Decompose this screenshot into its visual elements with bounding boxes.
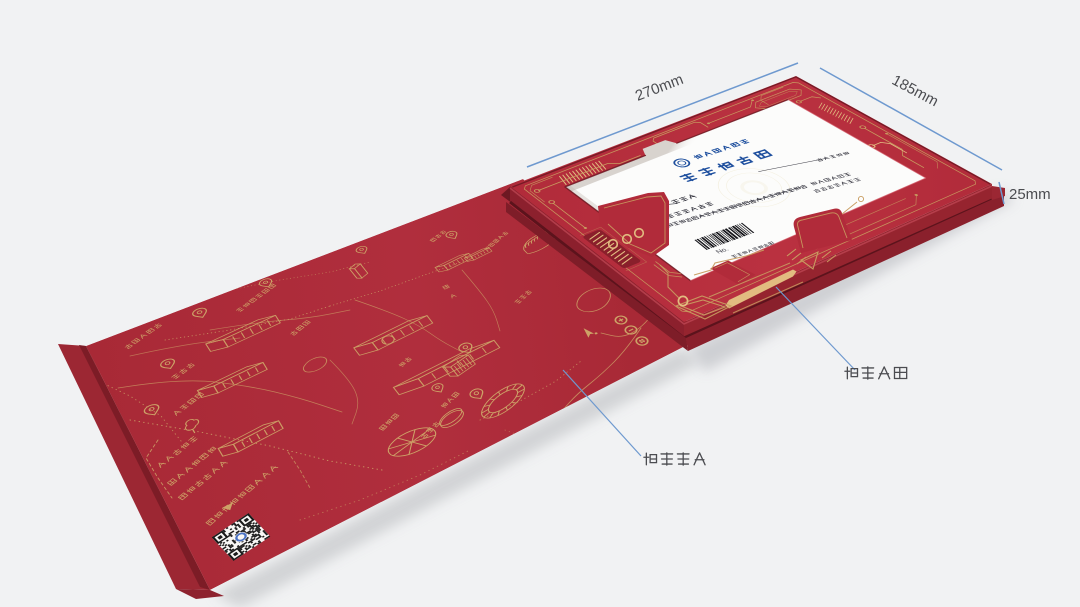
svg-text:25mm: 25mm bbox=[1009, 186, 1051, 203]
